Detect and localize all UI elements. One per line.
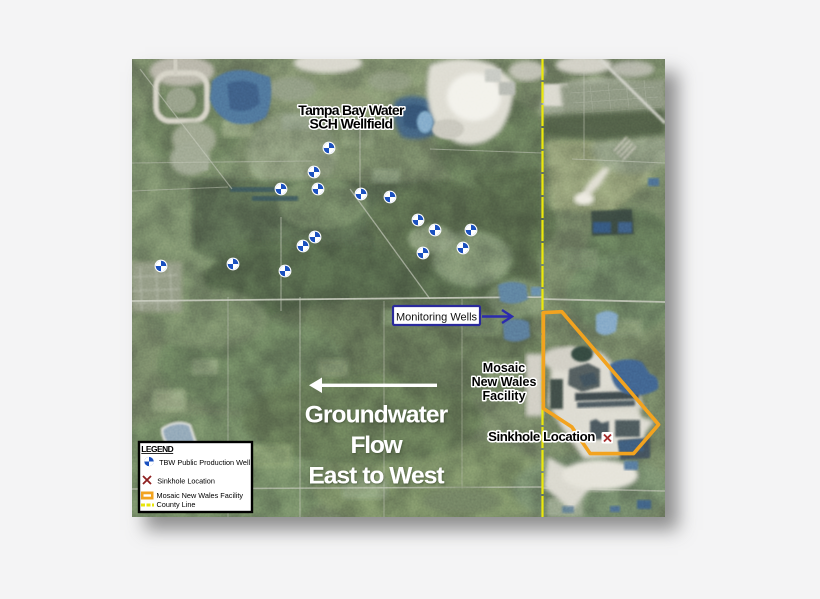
svg-text:Flow: Flow <box>351 432 404 459</box>
svg-text:Monitoring Wells: Monitoring Wells <box>396 312 478 324</box>
svg-text:Mosaic: Mosaic <box>483 361 525 375</box>
svg-text:TBW Public Production Well: TBW Public Production Well <box>159 458 250 467</box>
svg-text:Sinkhole Location: Sinkhole Location <box>157 477 215 486</box>
svg-text:LEGEND: LEGEND <box>141 444 173 454</box>
svg-text:East to West: East to West <box>308 463 444 490</box>
svg-text:Groundwater: Groundwater <box>305 402 449 429</box>
svg-text:Mosaic New Wales Facility: Mosaic New Wales Facility <box>157 491 244 500</box>
svg-text:Sinkhole Location: Sinkhole Location <box>488 429 595 444</box>
svg-text:County Line: County Line <box>157 500 196 509</box>
svg-text:New Wales: New Wales <box>472 375 537 389</box>
svg-text:SCH Wellfield: SCH Wellfield <box>310 116 393 132</box>
svg-text:Facility: Facility <box>482 389 525 403</box>
